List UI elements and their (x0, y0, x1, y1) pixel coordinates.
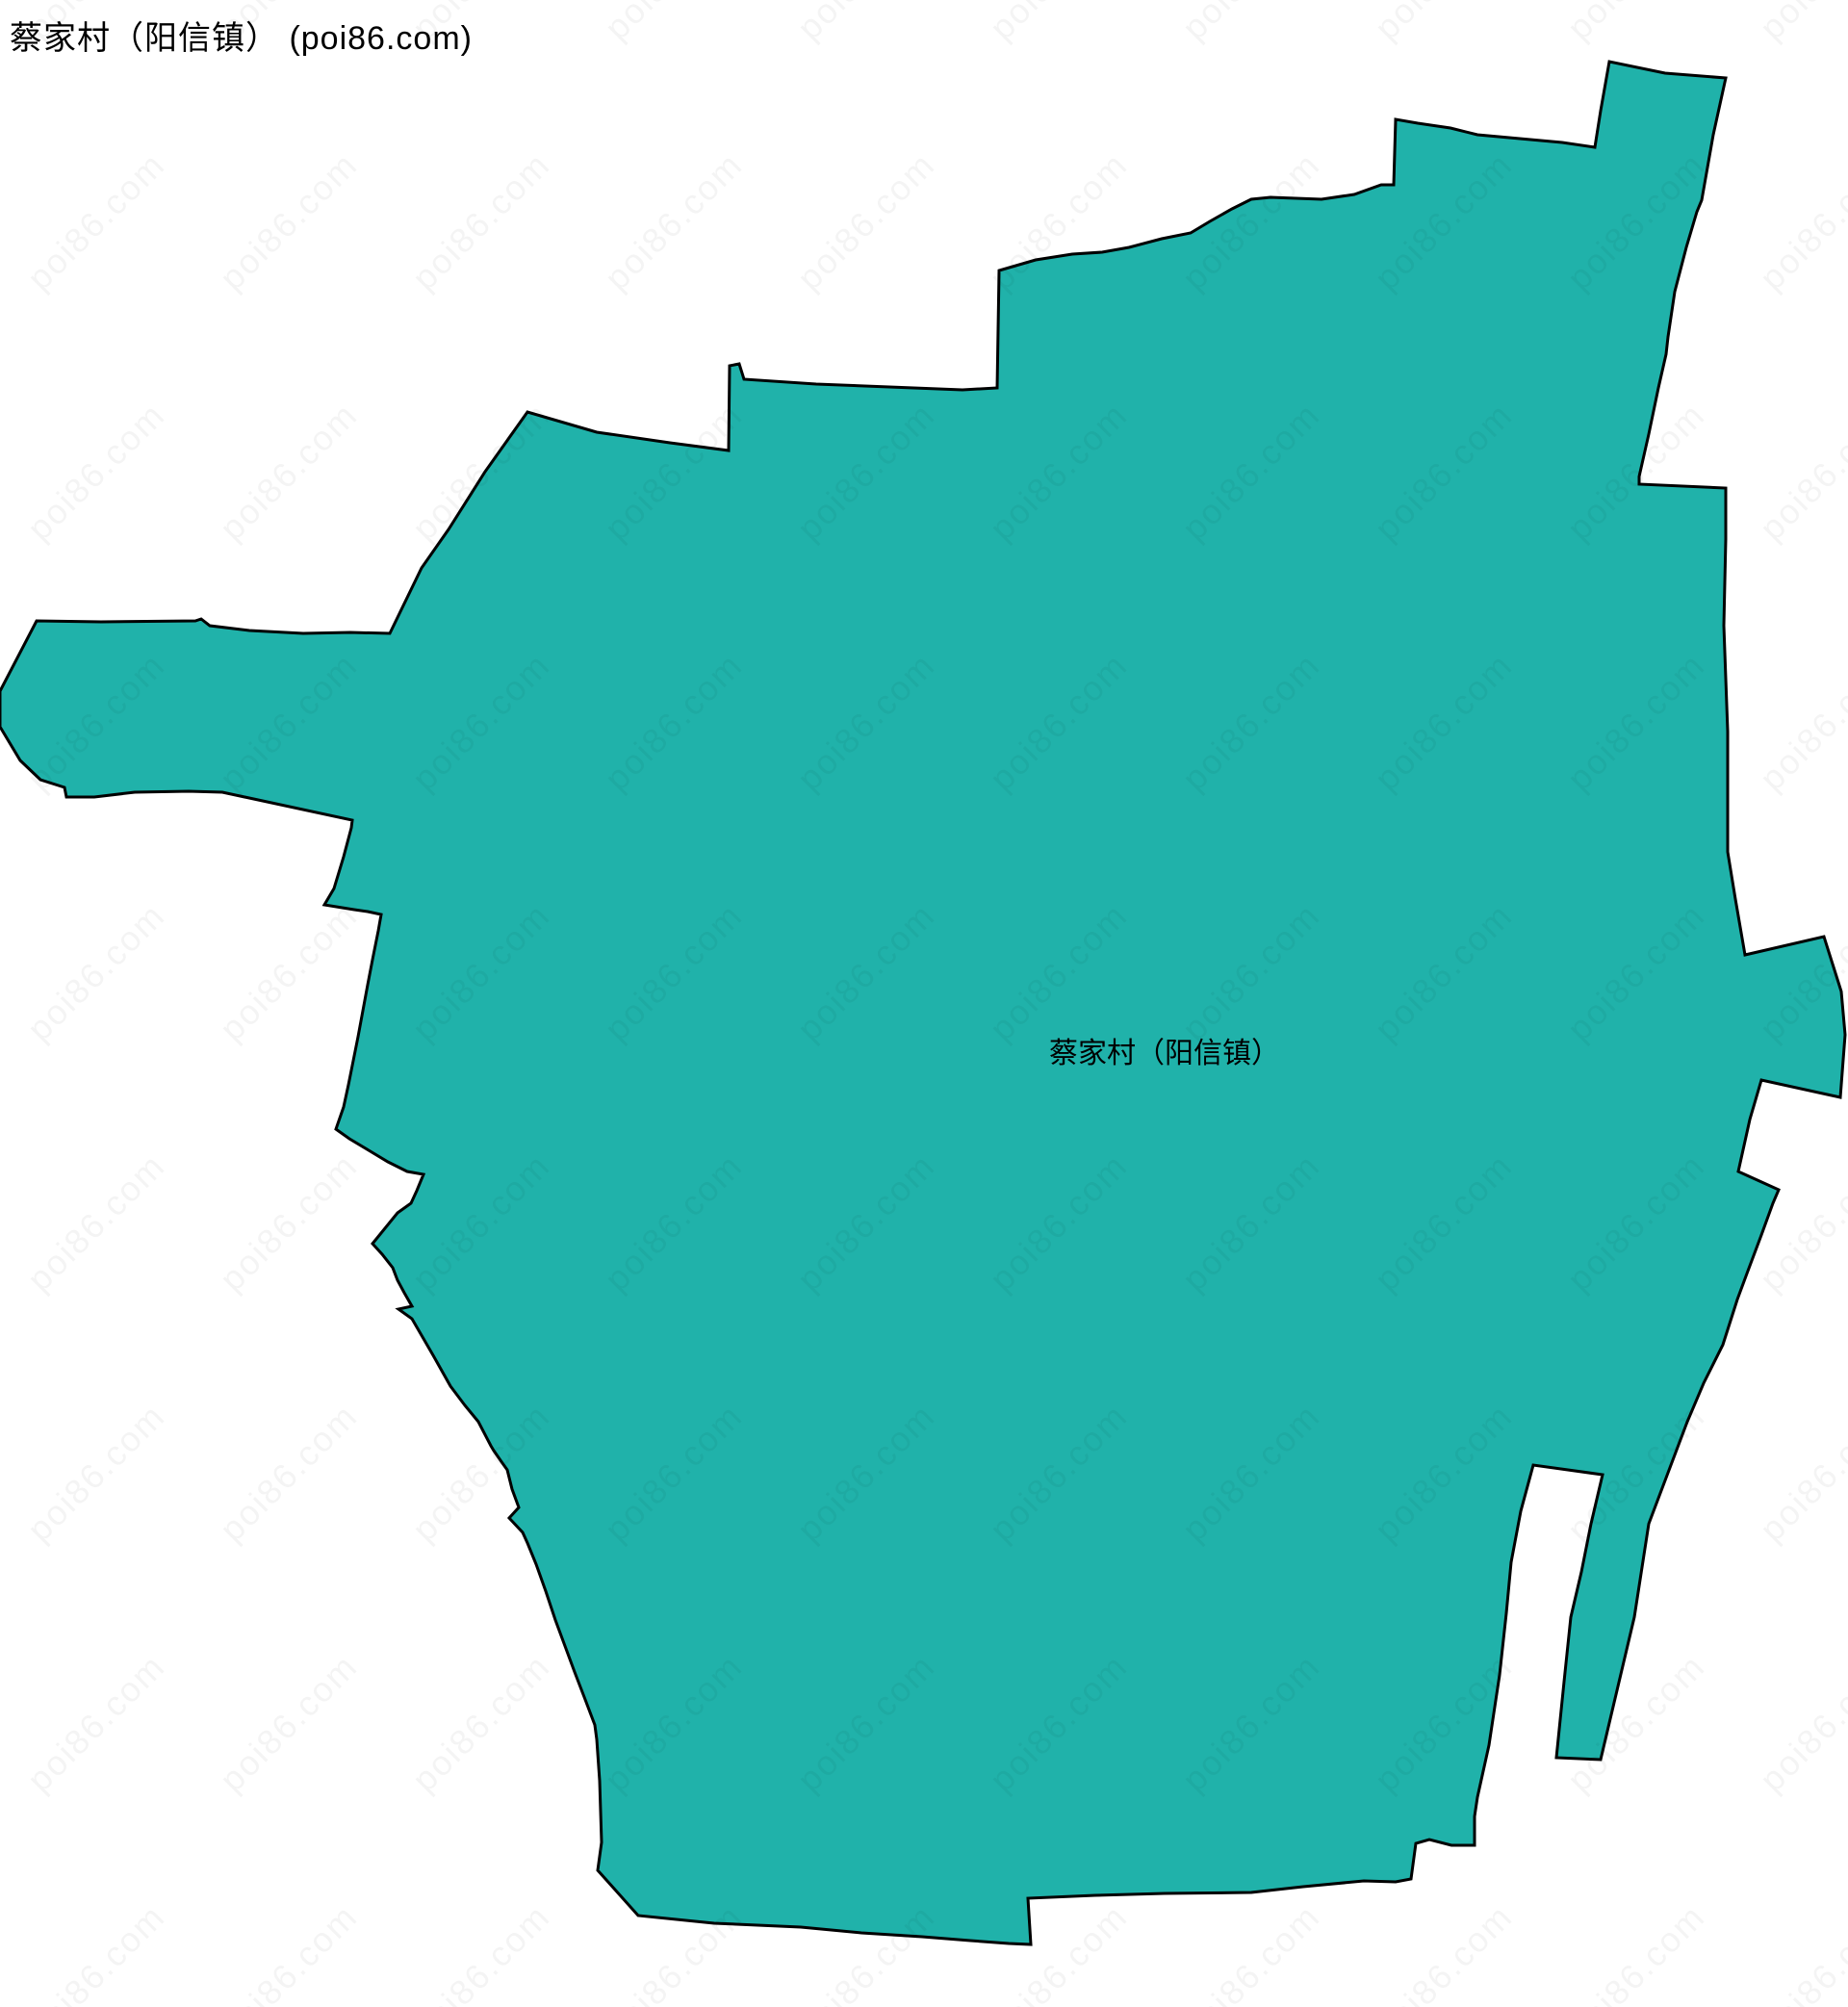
region-map-svg (0, 0, 1848, 2007)
map-canvas: poi86.compoi86.compoi86.compoi86.compoi8… (0, 0, 1848, 2007)
page-title: 蔡家村（阳信镇） (poi86.com) (10, 12, 473, 59)
region-label: 蔡家村（阳信镇） (1049, 1029, 1280, 1071)
region-polygon (0, 62, 1845, 1944)
